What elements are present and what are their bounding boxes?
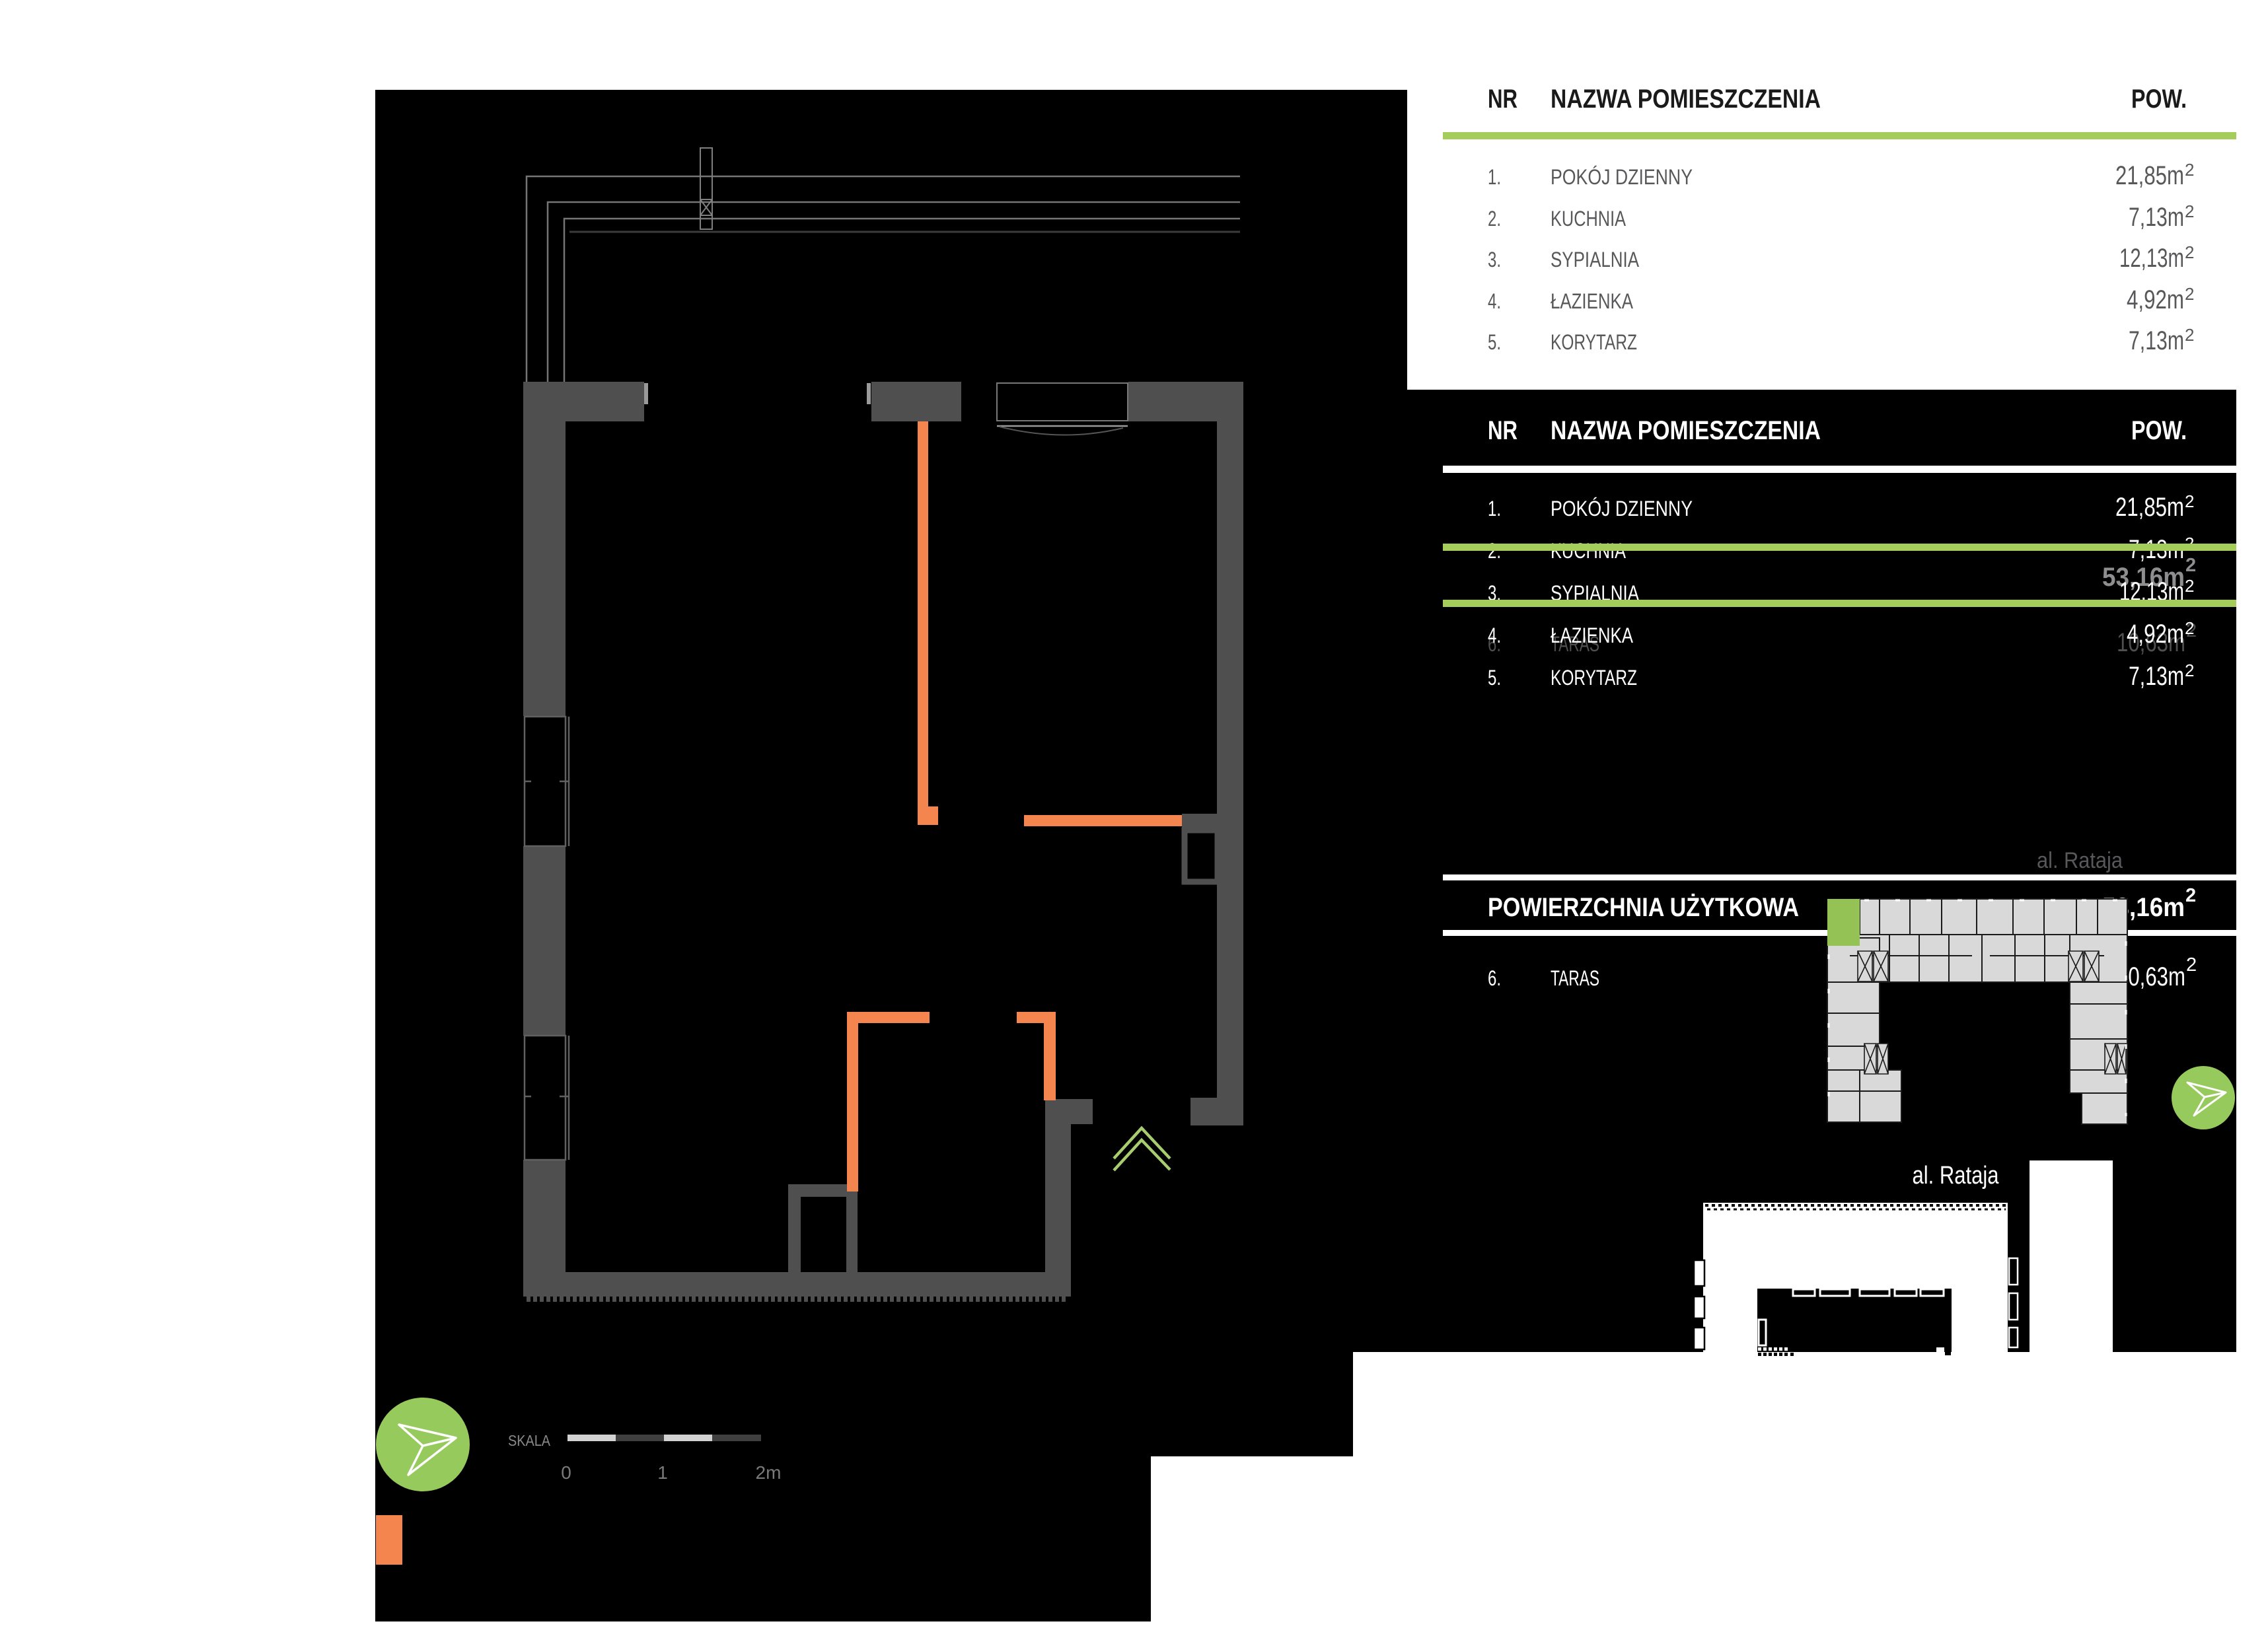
- svg-text:2m: 2m: [756, 1462, 782, 1483]
- svg-text:5.: 5.: [1488, 330, 1501, 354]
- svg-text:2: 2: [2185, 284, 2194, 304]
- svg-text:21,85m: 21,85m: [2115, 161, 2184, 190]
- svg-text:KORYTARZ: KORYTARZ: [1551, 330, 1637, 354]
- svg-text:NR: NR: [1488, 416, 1518, 445]
- svg-text:NAZWA POMIESZCZENIA: NAZWA POMIESZCZENIA: [1551, 416, 1821, 445]
- svg-text:POW.: POW.: [2131, 416, 2187, 445]
- svg-text:TARAS: TARAS: [1551, 966, 1599, 990]
- svg-text:2: 2: [2185, 885, 2196, 906]
- svg-text:12,13m: 12,13m: [2119, 244, 2184, 273]
- svg-text:4.: 4.: [1488, 623, 1501, 647]
- svg-text:7,13m: 7,13m: [2129, 662, 2184, 691]
- svg-text:7,13m: 7,13m: [2129, 203, 2184, 232]
- svg-text:KUCHNIA: KUCHNIA: [1551, 207, 1627, 231]
- svg-text:2: 2: [2185, 576, 2194, 596]
- svg-text:2: 2: [2185, 491, 2194, 511]
- svg-text:2: 2: [2185, 325, 2194, 345]
- svg-text:2: 2: [2185, 618, 2194, 638]
- svg-text:al. Rataja: al. Rataja: [2037, 848, 2123, 873]
- svg-text:2: 2: [2185, 160, 2194, 180]
- svg-text:KORYTARZ: KORYTARZ: [1551, 666, 1637, 690]
- svg-text:6.: 6.: [1488, 966, 1501, 990]
- svg-text:0: 0: [561, 1462, 571, 1483]
- svg-text:POKÓJ DZIENNY: POKÓJ DZIENNY: [1551, 165, 1693, 189]
- svg-text:2.: 2.: [1488, 207, 1501, 231]
- svg-text:2: 2: [2186, 954, 2197, 976]
- svg-text:ŁAZIENKA: ŁAZIENKA: [1551, 289, 1634, 313]
- svg-text:POKÓJ DZIENNY: POKÓJ DZIENNY: [1551, 497, 1693, 520]
- svg-text:POW.: POW.: [2131, 85, 2187, 114]
- svg-text:3.: 3.: [1488, 248, 1501, 271]
- svg-text:21,85m: 21,85m: [2115, 493, 2184, 522]
- svg-text:POWIERZCHNIA UŻYTKOWA: POWIERZCHNIA UŻYTKOWA: [1488, 893, 1799, 922]
- svg-text:al. Rataja: al. Rataja: [1913, 1162, 2000, 1190]
- svg-text:2: 2: [2185, 660, 2194, 680]
- svg-text:4,92m: 4,92m: [2127, 620, 2184, 649]
- svg-text:1.: 1.: [1488, 165, 1501, 189]
- svg-text:2: 2: [2185, 555, 2196, 576]
- svg-text:SYPIALNIA: SYPIALNIA: [1551, 248, 1640, 271]
- svg-text:7,13m: 7,13m: [2129, 326, 2184, 355]
- svg-text:1: 1: [657, 1462, 668, 1483]
- svg-text:4.: 4.: [1488, 289, 1501, 313]
- svg-text:ŁAZIENKA: ŁAZIENKA: [1551, 623, 1634, 647]
- svg-text:NR: NR: [1488, 85, 1518, 114]
- svg-text:5.: 5.: [1488, 666, 1501, 690]
- svg-text:2: 2: [2185, 242, 2194, 262]
- svg-text:NAZWA POMIESZCZENIA: NAZWA POMIESZCZENIA: [1551, 85, 1821, 114]
- svg-text:2: 2: [2185, 201, 2194, 221]
- svg-text:1.: 1.: [1488, 497, 1501, 520]
- svg-text:4,92m: 4,92m: [2127, 285, 2184, 314]
- svg-text:SKALA: SKALA: [508, 1432, 551, 1449]
